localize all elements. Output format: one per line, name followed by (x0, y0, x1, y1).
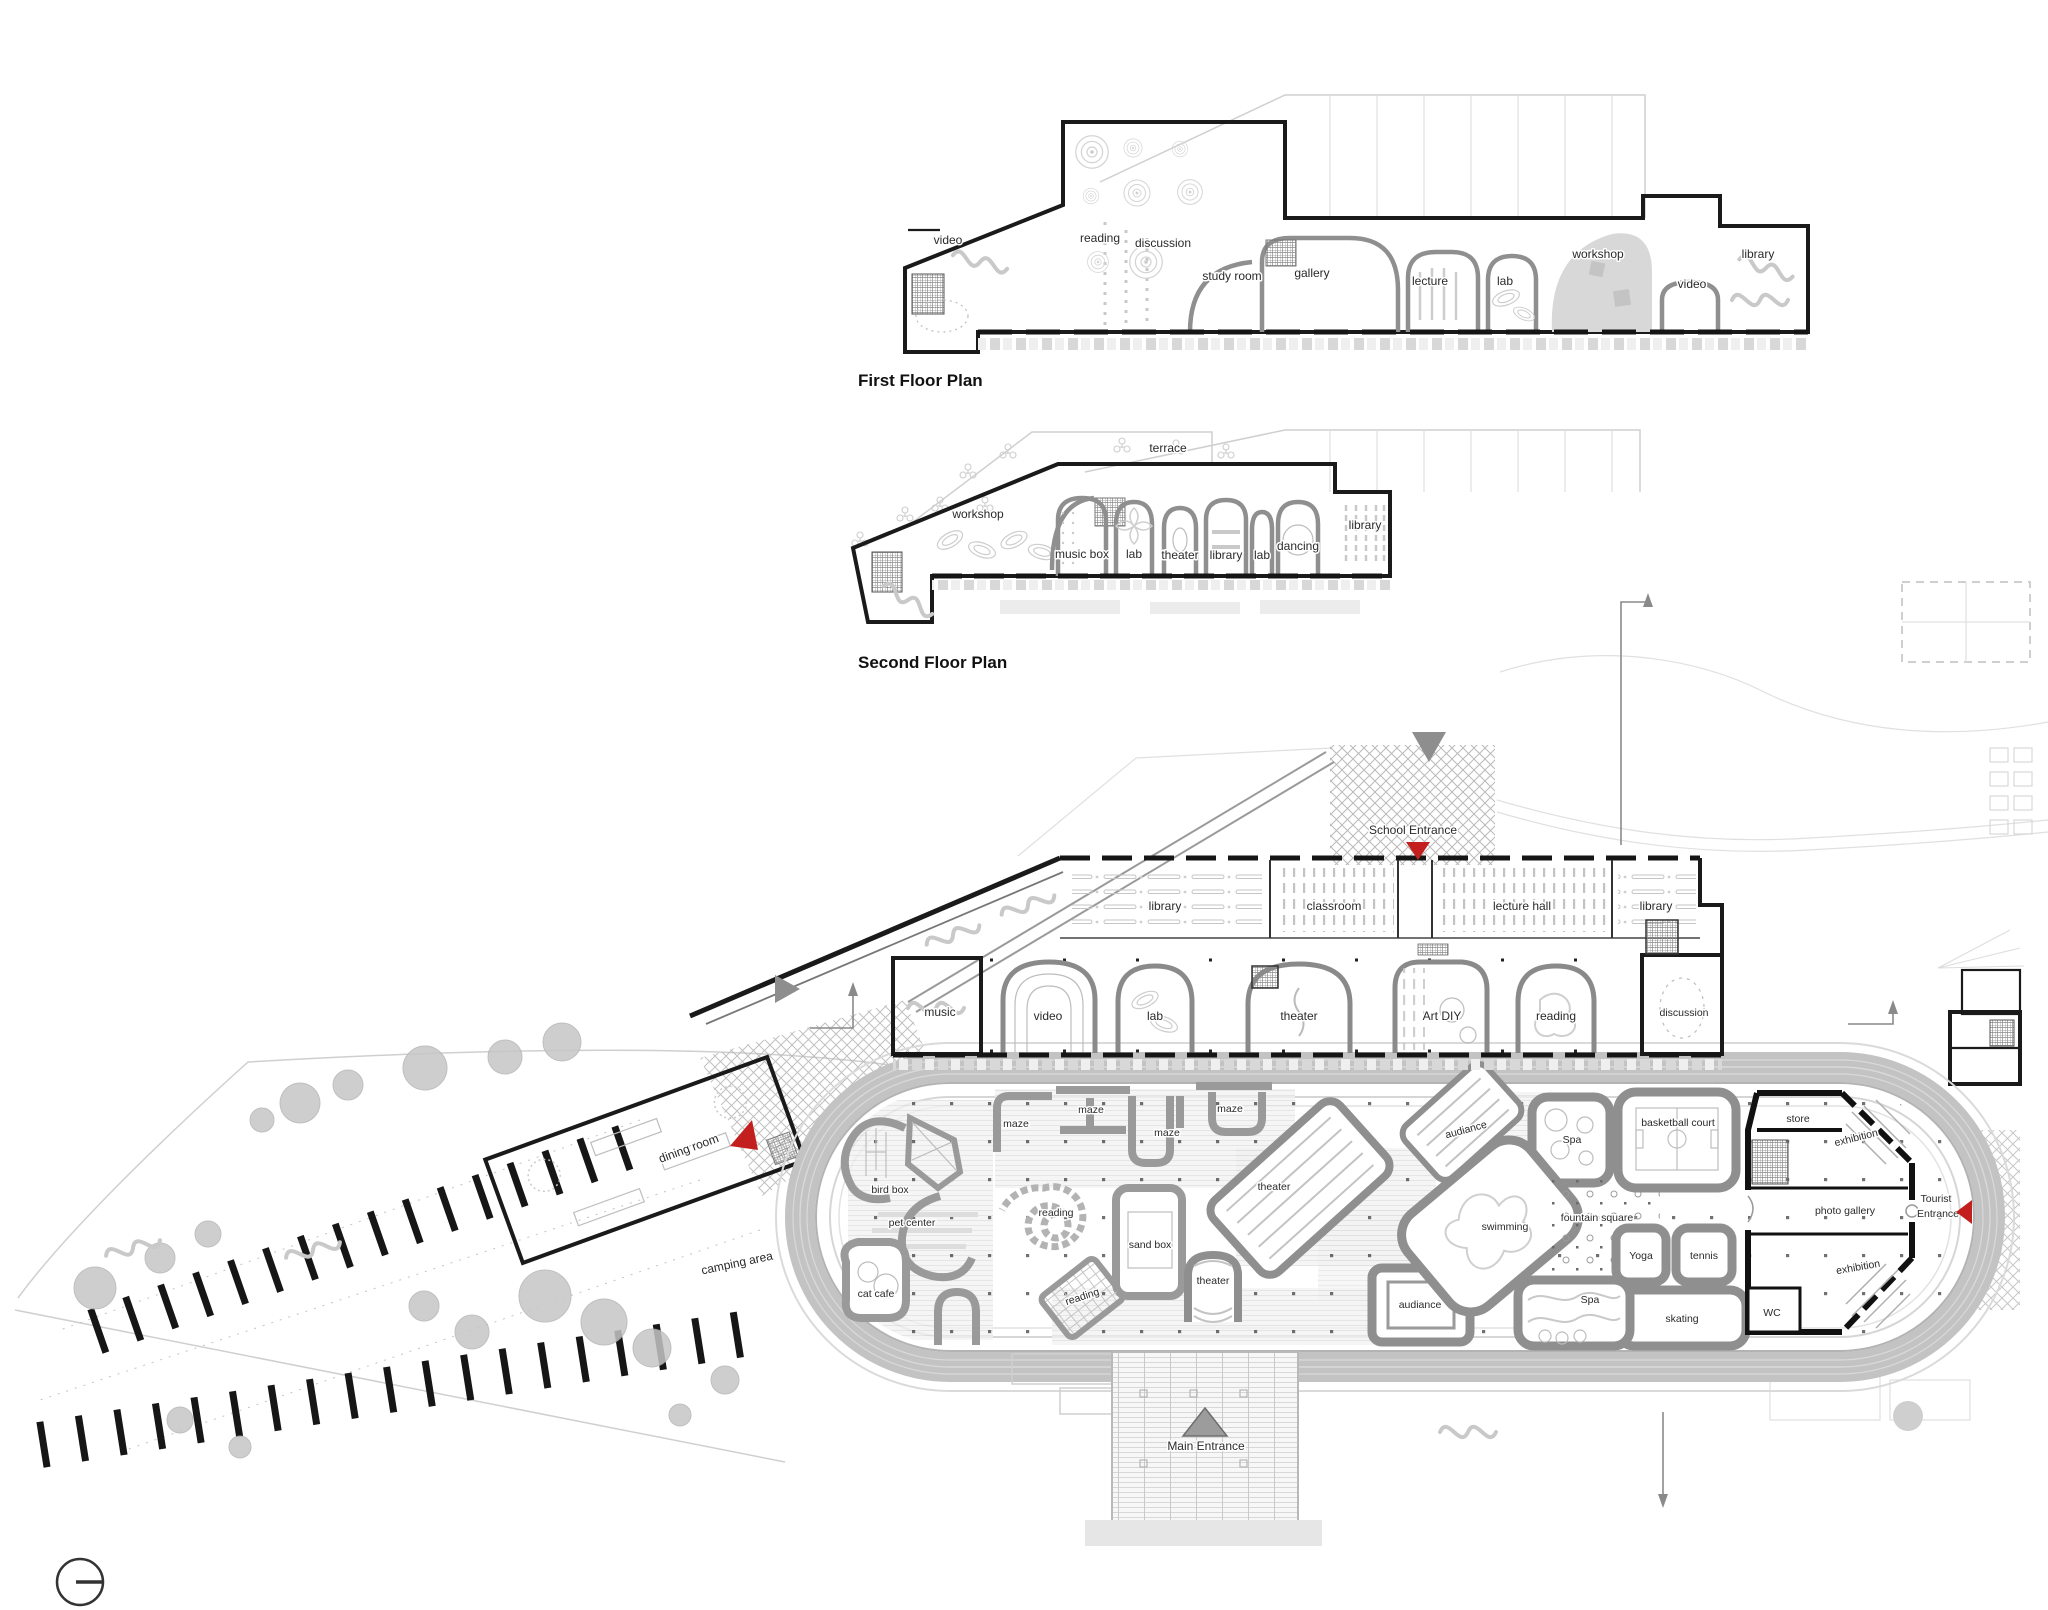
sf-terrace-label: terrace (1149, 441, 1187, 455)
sf-theater-label: theater (1161, 548, 1198, 562)
tennis-label: tennis (1690, 1250, 1718, 1262)
sf-music-box-label: music box (1055, 547, 1109, 561)
video-room-label: video (1034, 1009, 1063, 1023)
spa-lower-label: Spa (1581, 1294, 1600, 1306)
site-plan-sheet: dining room camping area Main Entrance b… (0, 0, 2048, 1610)
sf-library-1-label: library (1210, 548, 1243, 562)
art-diy-room-label: Art DIY (1423, 1009, 1462, 1023)
north-compass-icon (57, 1559, 103, 1605)
yoga-label: Yoga (1629, 1250, 1653, 1262)
reading-spiral-label: reading (1038, 1207, 1073, 1219)
theater-room-label: theater (1280, 1009, 1317, 1023)
sf-lab-2-label: lab (1254, 548, 1270, 562)
lab-room-label: lab (1147, 1009, 1163, 1023)
ff-study-room-label: study room (1202, 269, 1261, 283)
skating-label: skating (1665, 1313, 1698, 1325)
cat-cafe-label: cat cafe (858, 1288, 895, 1300)
trees (74, 1023, 739, 1458)
spa-upper-label: Spa (1563, 1134, 1582, 1146)
swimming-label: swimming (1482, 1221, 1529, 1233)
first-floor-plan-caption: First Floor Plan (858, 371, 983, 390)
upper-library-2-label: library (1640, 899, 1673, 913)
ff-lab-label: lab (1497, 274, 1513, 288)
ff-discussion-label: discussion (1135, 236, 1191, 250)
upper-library-1-label: library (1149, 899, 1182, 913)
maze-label-2: maze (1078, 1104, 1104, 1116)
pet-center-label: pet center (889, 1217, 936, 1229)
lecture-hall-label: lecture hall (1493, 899, 1551, 913)
second-floor-plan-caption: Second Floor Plan (858, 653, 1007, 672)
tourist-entrance-label-line1: Tourist (1921, 1193, 1952, 1205)
ff-gallery-label: gallery (1294, 266, 1329, 280)
architectural-drawing: dining room camping area Main Entrance b… (0, 0, 2048, 1610)
maze-label-3: maze (1154, 1127, 1180, 1139)
discussion-room-label: discussion (1659, 1007, 1708, 1019)
wc-label: WC (1763, 1307, 1781, 1319)
reading-room-label: reading (1536, 1009, 1576, 1023)
context-court-grid (1990, 748, 2032, 834)
ff-reading-label: reading (1080, 231, 1120, 245)
sf-lab-1-label: lab (1126, 547, 1142, 561)
context-black-building (1950, 970, 2020, 1084)
audience-lower-label: audiance (1399, 1299, 1442, 1311)
main-entrance-label: Main Entrance (1167, 1439, 1245, 1453)
classroom-label: classroom (1307, 899, 1362, 913)
music-room-label: music (924, 1005, 955, 1019)
entrance-step (1085, 1520, 1322, 1546)
store-label: store (1786, 1113, 1810, 1125)
photo-gallery-label: photo gallery (1815, 1205, 1876, 1217)
sf-library-2-label: library (1349, 518, 1382, 532)
sf-dancing-label: dancing (1277, 539, 1319, 553)
sf-workshop-label: workshop (951, 507, 1004, 521)
sand-box-label: sand box (1129, 1239, 1172, 1251)
fountain-square-label: fountain square (1561, 1212, 1634, 1224)
theater-small-label: theater (1197, 1275, 1230, 1287)
camping-area-label: camping area (700, 1249, 774, 1278)
dining-room-label: dining room (657, 1131, 721, 1166)
tourist-entrance-label-line2: Entrance (1917, 1208, 1959, 1220)
ff-workshop-label: workshop (1571, 247, 1624, 261)
theater-large-label: theater (1258, 1181, 1291, 1193)
school-entrance-label: School Entrance (1369, 823, 1457, 837)
maze-label-4: maze (1217, 1103, 1243, 1115)
ff-video-2-label: video (1678, 277, 1707, 291)
basketball-court-label: basketball court (1641, 1117, 1715, 1129)
ff-library-label: library (1742, 247, 1775, 261)
maze-label-1: maze (1003, 1118, 1029, 1130)
bird-box-label: bird box (871, 1184, 909, 1196)
second-floor-plan: terrace workshop music box lab theater l… (852, 430, 1640, 672)
west-road-marker-icon (775, 975, 800, 1003)
ff-video-1-label: video (934, 233, 963, 247)
ff-lecture-label: lecture (1412, 274, 1448, 288)
first-floor-plan: video reading discussion study room gall… (858, 95, 1808, 390)
